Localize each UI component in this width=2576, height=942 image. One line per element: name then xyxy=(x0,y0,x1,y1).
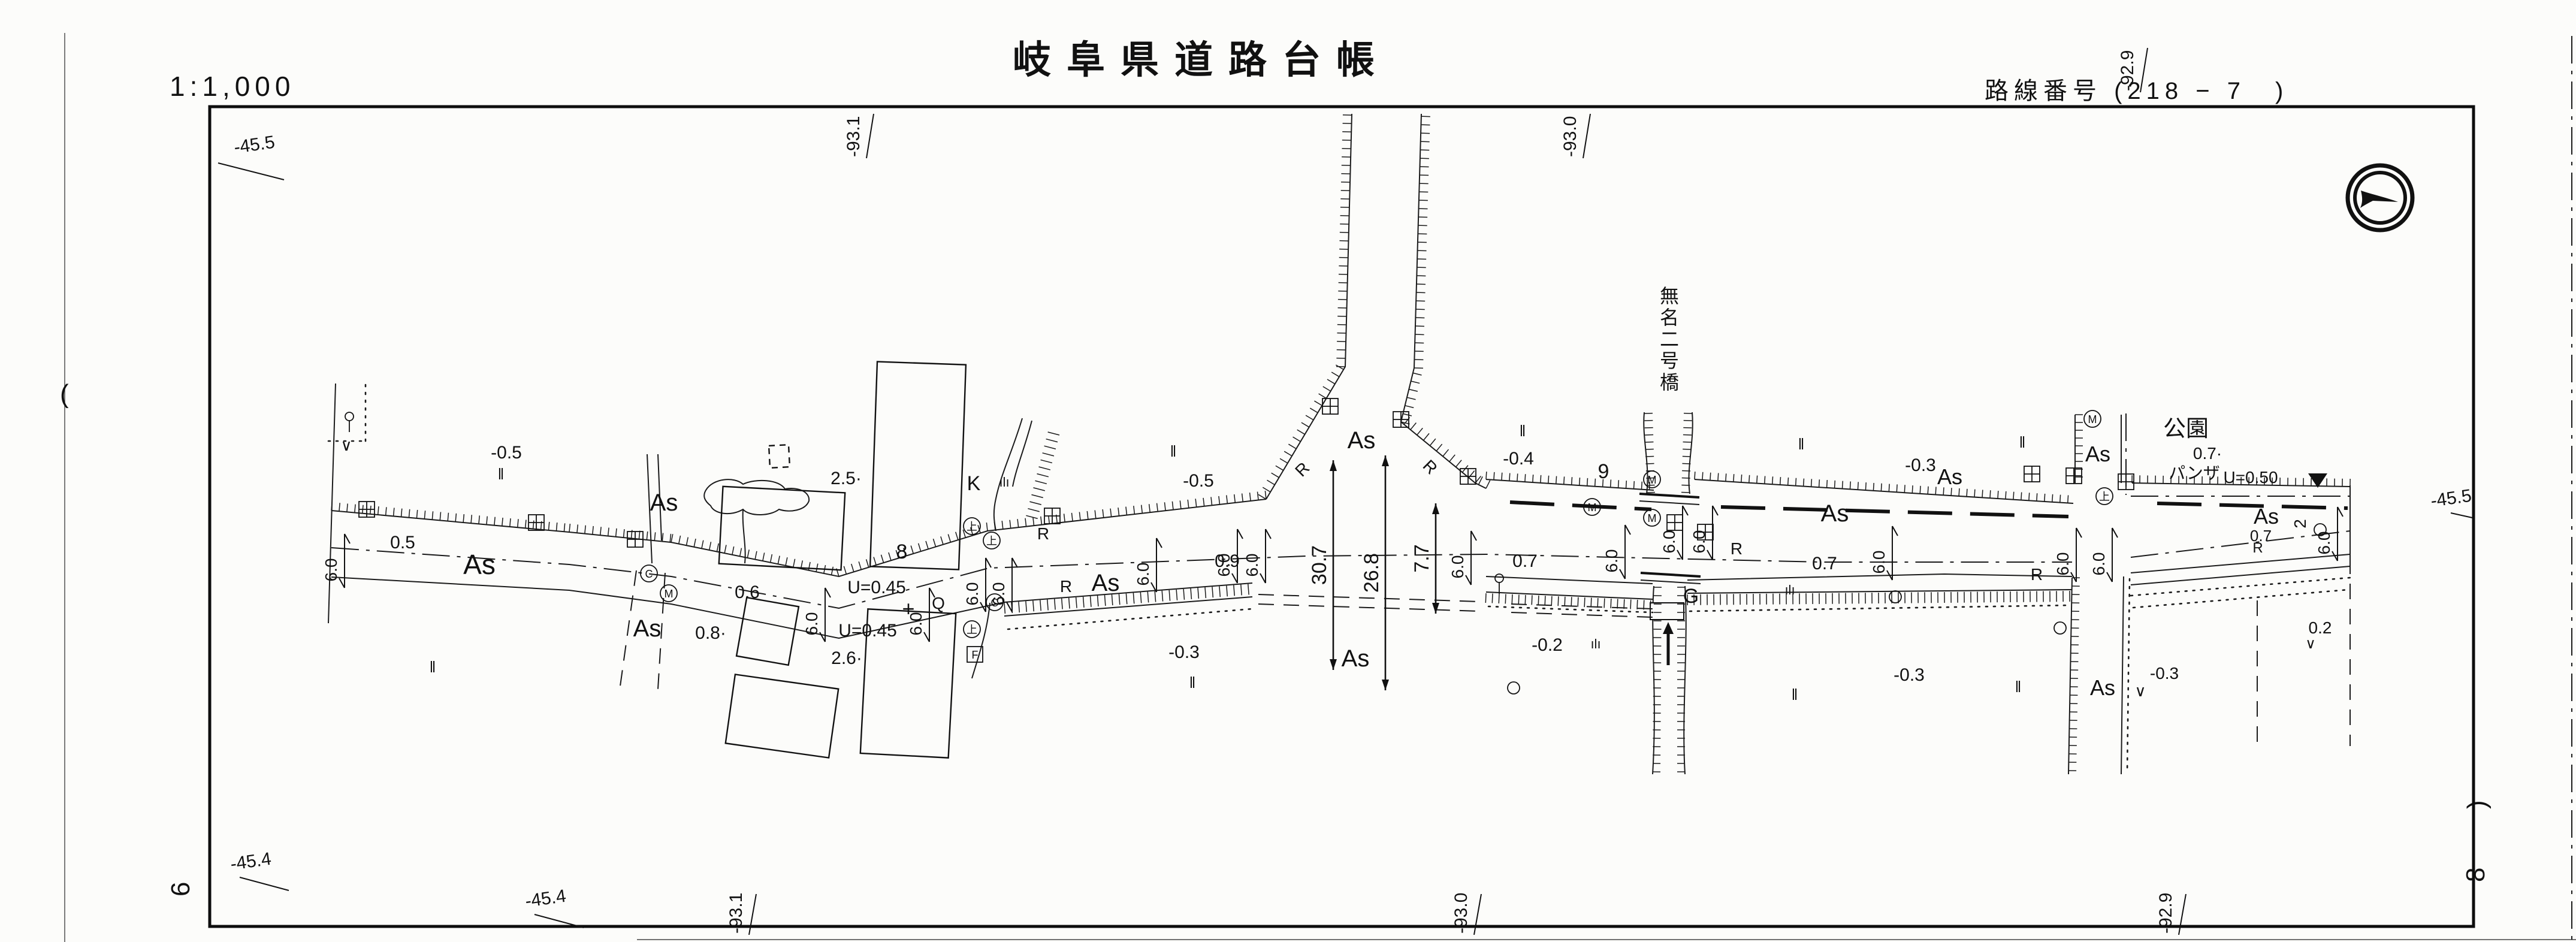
hatch-tick xyxy=(409,509,409,518)
hatch-tick xyxy=(1133,593,1134,603)
map-label: 8 xyxy=(896,541,908,563)
hatch-tick xyxy=(1062,599,1062,609)
hatch-tick xyxy=(1835,481,1835,488)
map-label: -0.5 xyxy=(1183,471,1214,491)
grid-label: -92.9 xyxy=(2118,50,2137,91)
hatch-tick xyxy=(2060,495,2061,503)
hatch-tick xyxy=(1889,484,1889,492)
hatch-tick xyxy=(1037,474,1049,477)
hatch-tick xyxy=(1545,596,1545,605)
road-line xyxy=(1511,604,1653,609)
road-line xyxy=(1486,479,1654,490)
hatch-tick xyxy=(1772,476,1773,484)
hatch-tick xyxy=(941,536,943,544)
map-label: As xyxy=(650,490,678,516)
width-label: 6.0 xyxy=(1660,530,1678,554)
hatch-tick xyxy=(1492,593,1493,603)
hatch-tick xyxy=(1041,517,1042,525)
hatch-tick xyxy=(1578,597,1578,607)
hatch-tick xyxy=(1718,473,1719,481)
hatch-tick xyxy=(616,529,617,537)
hatch-tick xyxy=(1998,491,1998,499)
hatch-tick xyxy=(709,542,711,550)
manhole-m-icon-letter: M xyxy=(665,588,674,600)
hatch-tick xyxy=(1827,480,1828,488)
hatch-tick xyxy=(1028,509,1039,512)
hatch-tick xyxy=(786,557,787,566)
hatch-tick xyxy=(1505,594,1506,603)
hatch-tick xyxy=(1881,484,1882,491)
grid-label: -45.5 xyxy=(2429,486,2472,511)
map-label: + xyxy=(902,596,914,621)
hatch-tick xyxy=(378,506,379,515)
hatch-tick xyxy=(1026,601,1026,612)
hatch-tick xyxy=(1310,408,1318,413)
map-label: As xyxy=(2085,442,2110,466)
map-label: Q xyxy=(932,594,945,612)
hatch-tick xyxy=(679,536,681,544)
hatch-tick xyxy=(1951,488,1952,496)
hatch-tick xyxy=(747,549,749,558)
manhole-m-icon-letter: M xyxy=(1648,512,1657,524)
hatch-tick xyxy=(1169,590,1170,601)
map-label: 2 xyxy=(2291,519,2309,529)
hatch-tick xyxy=(1624,599,1624,609)
hatch-tick xyxy=(1327,379,1335,384)
map-label: -0.3 xyxy=(2150,664,2179,683)
width-label: 6.0 xyxy=(1134,563,1152,586)
road-line xyxy=(331,548,2072,608)
hatch-tick xyxy=(1110,509,1112,517)
hatch-tick xyxy=(1411,381,1420,384)
map-label: ‖ xyxy=(498,465,505,483)
hatch-tick xyxy=(1172,502,1173,510)
hatch-tick xyxy=(1611,599,1611,608)
hatch-tick xyxy=(1198,588,1198,599)
map-label: 2.5· xyxy=(831,469,862,488)
hatch-tick xyxy=(1604,599,1605,608)
hatch-tick xyxy=(2045,494,2045,502)
hatch-tick xyxy=(1757,476,1757,484)
hatch-tick xyxy=(1518,594,1519,604)
building-outline xyxy=(769,445,790,468)
map-label: R xyxy=(2252,540,2263,556)
road-line xyxy=(1510,502,1651,509)
hatch-tick xyxy=(1430,439,1436,446)
hatch-tick xyxy=(518,519,518,527)
hatch-tick xyxy=(1502,473,1502,481)
hatch-tick xyxy=(1485,593,1486,603)
hatch-tick xyxy=(911,546,913,554)
map-label: 2.6· xyxy=(831,648,862,668)
hatch-tick xyxy=(1403,413,1412,416)
dimension-label: 7.7 xyxy=(1411,544,1433,572)
utility-circle-icon-letter: 上 xyxy=(967,521,977,533)
map-label: 公園 xyxy=(2163,416,2209,442)
width-label: 6.0 xyxy=(1870,551,1888,574)
hatch-tick xyxy=(1017,519,1019,527)
hatch-tick xyxy=(654,532,655,541)
hatch-tick xyxy=(816,564,818,572)
grid-tick xyxy=(240,877,289,890)
hatch-tick xyxy=(1176,590,1177,600)
hatch-tick xyxy=(1982,490,1983,497)
hatch-tick xyxy=(1967,489,1967,497)
hatch-tick xyxy=(1695,472,1695,479)
dimension-label: 30.7 xyxy=(1308,545,1331,585)
map-label: -0.3 xyxy=(1168,642,1200,662)
hatch-tick xyxy=(1633,481,1634,489)
hatch-tick xyxy=(1456,460,1462,467)
hatch-tick xyxy=(355,505,355,513)
hatch-tick xyxy=(1048,432,1059,435)
hatch-tick xyxy=(1211,497,1212,505)
hatch-tick xyxy=(1974,490,1975,497)
hatch-tick xyxy=(1288,444,1296,449)
hatch-tick xyxy=(2021,493,2022,500)
hatch-tick xyxy=(1212,587,1213,597)
hatch-tick xyxy=(1424,433,1430,440)
hatch-tick xyxy=(1873,483,1874,491)
hatch-tick xyxy=(455,514,456,522)
dimension-label: 26.8 xyxy=(1360,553,1383,593)
hatch-tick xyxy=(593,526,593,535)
road-line xyxy=(1401,114,1486,488)
hatch-tick xyxy=(740,548,742,557)
hatch-tick xyxy=(1626,481,1627,488)
map-label: 0.9 xyxy=(1215,551,1240,571)
hatch-tick xyxy=(1155,591,1155,602)
map-label: As xyxy=(2254,504,2279,529)
hatch-tick xyxy=(347,503,348,512)
building-outline xyxy=(870,362,966,570)
hatch-tick xyxy=(1069,598,1070,609)
hatch-marks xyxy=(331,115,2350,772)
hatch-tick xyxy=(1959,488,1959,496)
hatch-tick xyxy=(1407,397,1416,400)
hatch-tick xyxy=(1265,491,1266,499)
page-title: 岐阜県道路台帳 xyxy=(1013,38,1390,81)
hatch-tick xyxy=(1188,500,1189,508)
hatch-tick xyxy=(1258,494,1266,499)
hatch-tick xyxy=(1702,472,1703,480)
hatch-tick xyxy=(440,512,440,520)
hatch-tick xyxy=(1301,422,1309,427)
map-label: K xyxy=(967,472,981,495)
hatch-tick xyxy=(569,524,570,532)
map-label: R xyxy=(2031,565,2043,584)
manhole-m-icon-letter: M xyxy=(1648,474,1657,486)
road-line xyxy=(1488,606,1653,612)
road-line xyxy=(2068,578,2072,774)
utility-circle-icon-letter: 上 xyxy=(2099,491,2110,503)
hatch-tick xyxy=(1749,475,1750,483)
hatch-tick xyxy=(1630,599,1631,609)
hatch-tick xyxy=(1055,599,1055,610)
map-label: ‖ xyxy=(2019,433,2026,451)
map-label: 0.7· xyxy=(2193,444,2222,463)
hatch-tick xyxy=(778,556,780,564)
hatch-tick xyxy=(1595,479,1596,487)
hatch-tick xyxy=(1191,588,1191,599)
hatch-tick xyxy=(832,567,833,575)
width-label: 6.0 xyxy=(1602,549,1621,573)
hatch-tick xyxy=(933,539,935,547)
left-margin-page-number: 6 xyxy=(166,882,195,896)
hatch-tick xyxy=(694,539,696,547)
road-line xyxy=(2121,576,2124,774)
hatch-tick xyxy=(1091,596,1091,607)
utility-circle-icon-letter: 上 xyxy=(967,624,977,636)
hatch-tick xyxy=(1538,596,1539,605)
hatch-tick xyxy=(717,544,718,552)
road-line xyxy=(1511,612,1653,617)
hatch-tick xyxy=(1041,460,1052,463)
hatch-tick xyxy=(1734,474,1734,482)
hatch-tick xyxy=(1618,480,1619,488)
hatch-tick xyxy=(1319,394,1327,398)
hatch-tick xyxy=(1912,485,1913,493)
width-label: 6.0 xyxy=(989,582,1008,606)
hatch-tick xyxy=(1098,596,1098,606)
hatch-tick xyxy=(686,537,688,545)
manhole-icon xyxy=(1508,682,1520,694)
hatch-tick xyxy=(670,534,671,542)
right-margin-bracket: ) xyxy=(2462,800,2492,809)
hatch-tick xyxy=(702,541,703,549)
map-label: 9 xyxy=(1598,460,1609,483)
map-label: -0.2 xyxy=(1532,635,1563,655)
map-label: ‖ xyxy=(1520,422,1526,440)
hatch-tick xyxy=(1043,453,1054,456)
right-margin-page-number: 8 xyxy=(2461,868,2490,882)
map-frame xyxy=(210,107,2474,926)
hatch-tick xyxy=(608,528,609,536)
utility-circle-icon-letter: 上 xyxy=(986,535,997,547)
hatch-tick xyxy=(1323,387,1331,391)
hatch-tick xyxy=(1449,455,1455,462)
map-label: ılı xyxy=(1784,582,1795,597)
width-label: 6.0 xyxy=(963,582,982,606)
map-labels: -0.50.5AsAs2.5·8K0.6U=0.45+U=0.45As0.8·2… xyxy=(340,285,2332,704)
hatch-tick xyxy=(1486,472,1487,479)
width-label: 6.0 xyxy=(322,558,340,582)
grid-label: -45.4 xyxy=(229,849,272,874)
manhole-icon xyxy=(2054,622,2066,634)
hatch-tick xyxy=(1928,487,1928,494)
hatch-tick xyxy=(1025,518,1026,527)
building-outline xyxy=(736,597,799,665)
hatch-tick xyxy=(1935,487,1936,494)
hatch-tick xyxy=(1284,451,1292,456)
hatch-tick xyxy=(1250,493,1251,501)
hatch-tick xyxy=(1183,589,1184,600)
width-label: 6.0 xyxy=(1690,530,1708,554)
width-label: 6.0 xyxy=(1243,554,1261,577)
hatch-tick xyxy=(1248,584,1249,595)
road-line xyxy=(1687,574,2072,580)
hatch-tick xyxy=(1134,506,1135,514)
road-line xyxy=(2131,578,2350,596)
hatch-tick xyxy=(1405,406,1414,408)
road-ledger-sheet: 1:1,000 岐阜県道路台帳 路線番号 (218 − 7 ) ( 6 ) 8 xyxy=(0,0,2576,942)
grid-tick xyxy=(866,114,874,158)
hatch-tick xyxy=(1564,476,1565,484)
hatch-tick xyxy=(533,521,534,529)
hatch-tick xyxy=(494,517,495,526)
grid-tick xyxy=(218,163,284,180)
grid-label: -45.5 xyxy=(232,132,276,158)
hatch-tick xyxy=(874,557,876,565)
hatch-tick xyxy=(851,564,854,572)
hatch-tick xyxy=(549,522,549,530)
hatch-tick xyxy=(1765,476,1765,484)
map-label: -0.3 xyxy=(1894,665,1925,685)
hatch-tick xyxy=(2068,495,2068,503)
grid-label: -93.0 xyxy=(1451,893,1471,934)
hatch-tick xyxy=(1819,479,1820,487)
map-label: R xyxy=(1291,458,1313,480)
hatch-tick xyxy=(1584,597,1585,607)
hatch-tick xyxy=(1293,437,1301,442)
hatch-tick xyxy=(2052,494,2053,502)
map-label: ılı xyxy=(999,475,1009,490)
map-label: As xyxy=(1092,570,1120,596)
map-label: R xyxy=(1037,524,1049,543)
hatch-tick xyxy=(1858,482,1858,490)
grid-label: -45.4 xyxy=(524,886,567,911)
hatch-tick xyxy=(416,510,417,518)
hatch-tick xyxy=(1219,496,1220,505)
hatch-tick xyxy=(1076,597,1077,608)
hatch-tick xyxy=(986,523,987,531)
map-label: G xyxy=(1683,585,1699,608)
map-label: R xyxy=(1060,577,1072,596)
box-f-letter: F xyxy=(972,649,979,661)
map-label: ‖ xyxy=(1792,686,1798,704)
road-line xyxy=(2127,579,2130,773)
hatch-tick xyxy=(844,566,846,574)
road-line xyxy=(1258,604,1480,611)
hatch-tick xyxy=(1525,595,1526,605)
hatch-tick xyxy=(1525,474,1526,482)
map-label: As xyxy=(1821,500,1849,527)
hatch-tick xyxy=(1486,481,1490,488)
hatch-tick xyxy=(1788,478,1789,485)
hatch-tick xyxy=(1118,508,1119,516)
hatch-tick xyxy=(386,507,386,515)
hatch-tick xyxy=(1572,477,1572,485)
hatch-tick xyxy=(1083,597,1084,608)
map-label: As xyxy=(1342,645,1370,672)
hatch-tick xyxy=(463,514,464,523)
hatch-tick xyxy=(1548,476,1549,484)
hatch-tick xyxy=(1314,401,1322,406)
hatch-tick xyxy=(1049,515,1050,524)
map-label: ‖ xyxy=(2015,678,2022,696)
hatch-tick xyxy=(577,524,578,533)
hatch-tick xyxy=(1039,467,1050,470)
hatch-tick xyxy=(889,552,891,560)
hatch-tick xyxy=(1409,390,1418,392)
hatch-tick xyxy=(1904,485,1905,493)
hatch-tick xyxy=(1162,591,1162,602)
hatch-tick xyxy=(1571,597,1572,606)
map-label: ‖ xyxy=(430,658,436,676)
grid-labels: -45.5-93.1-93.0-92.9-45.4-45.4-93.1-93.0… xyxy=(218,48,2473,935)
road-line xyxy=(2131,566,2350,585)
hatch-tick xyxy=(1843,481,1843,489)
hatch-tick xyxy=(1035,481,1046,484)
bridge-name-label: 無名二号橋 xyxy=(1660,285,1679,393)
hatch-tick xyxy=(1141,505,1143,514)
road-line xyxy=(1486,592,1653,599)
manhole-icon xyxy=(1889,591,1901,603)
grid-tick xyxy=(1583,114,1590,158)
hatch-tick xyxy=(755,551,757,560)
hatch-tick xyxy=(1297,430,1305,434)
hatch-tick xyxy=(1033,488,1044,491)
map-label: ılı xyxy=(1590,636,1600,651)
map-label: ‖ xyxy=(1170,442,1177,460)
hatch-tick xyxy=(1010,520,1011,529)
grid-tick xyxy=(1474,894,1481,935)
hatch-tick xyxy=(1205,587,1206,598)
hatch-tick xyxy=(724,545,726,553)
road-line xyxy=(1690,605,2070,611)
width-label: 6.0 xyxy=(2053,552,2072,576)
map-label: U=0.45 xyxy=(847,578,906,597)
map-label: R xyxy=(1420,456,1441,478)
hatch-tick xyxy=(1533,475,1533,482)
map-label: -0.4 xyxy=(1503,449,1534,469)
hatch-tick xyxy=(1517,473,1518,481)
hatch-tick xyxy=(1637,600,1638,609)
map-label: U=0.45 xyxy=(838,621,897,641)
hatch-tick xyxy=(1031,494,1043,497)
map-label: As xyxy=(1348,427,1376,454)
hatch-tick xyxy=(1147,592,1148,603)
hatch-tick xyxy=(1227,495,1228,503)
road-line xyxy=(2131,554,2350,573)
hatch-tick xyxy=(1306,415,1313,420)
hatch-tick xyxy=(1046,439,1058,442)
road-line xyxy=(2133,590,2349,608)
map-label: 0.2 xyxy=(2309,618,2332,637)
hatch-tick xyxy=(1558,596,1559,606)
hatch-tick xyxy=(859,561,861,569)
hatch-tick xyxy=(1865,482,1866,490)
hatch-tick xyxy=(1580,478,1580,485)
hatch-tick xyxy=(1026,515,1037,518)
manhole-c-icon-letter: C xyxy=(645,568,653,580)
hatch-tick xyxy=(1195,499,1197,507)
hatch-tick xyxy=(401,509,402,517)
hatch-tick xyxy=(1029,502,1041,505)
map-label: As xyxy=(633,615,662,642)
hatch-tick xyxy=(1040,600,1041,611)
hatch-tick xyxy=(487,517,487,525)
hatch-tick xyxy=(771,554,772,563)
hatch-tick xyxy=(1644,600,1644,609)
hatch-tick xyxy=(432,511,433,520)
hatch-tick xyxy=(1276,466,1284,470)
hatch-tick xyxy=(1726,473,1726,481)
hatch-tick xyxy=(1796,478,1796,486)
hatch-tick xyxy=(1044,446,1056,449)
hatch-tick xyxy=(1267,480,1275,485)
road-line xyxy=(1486,576,1653,584)
